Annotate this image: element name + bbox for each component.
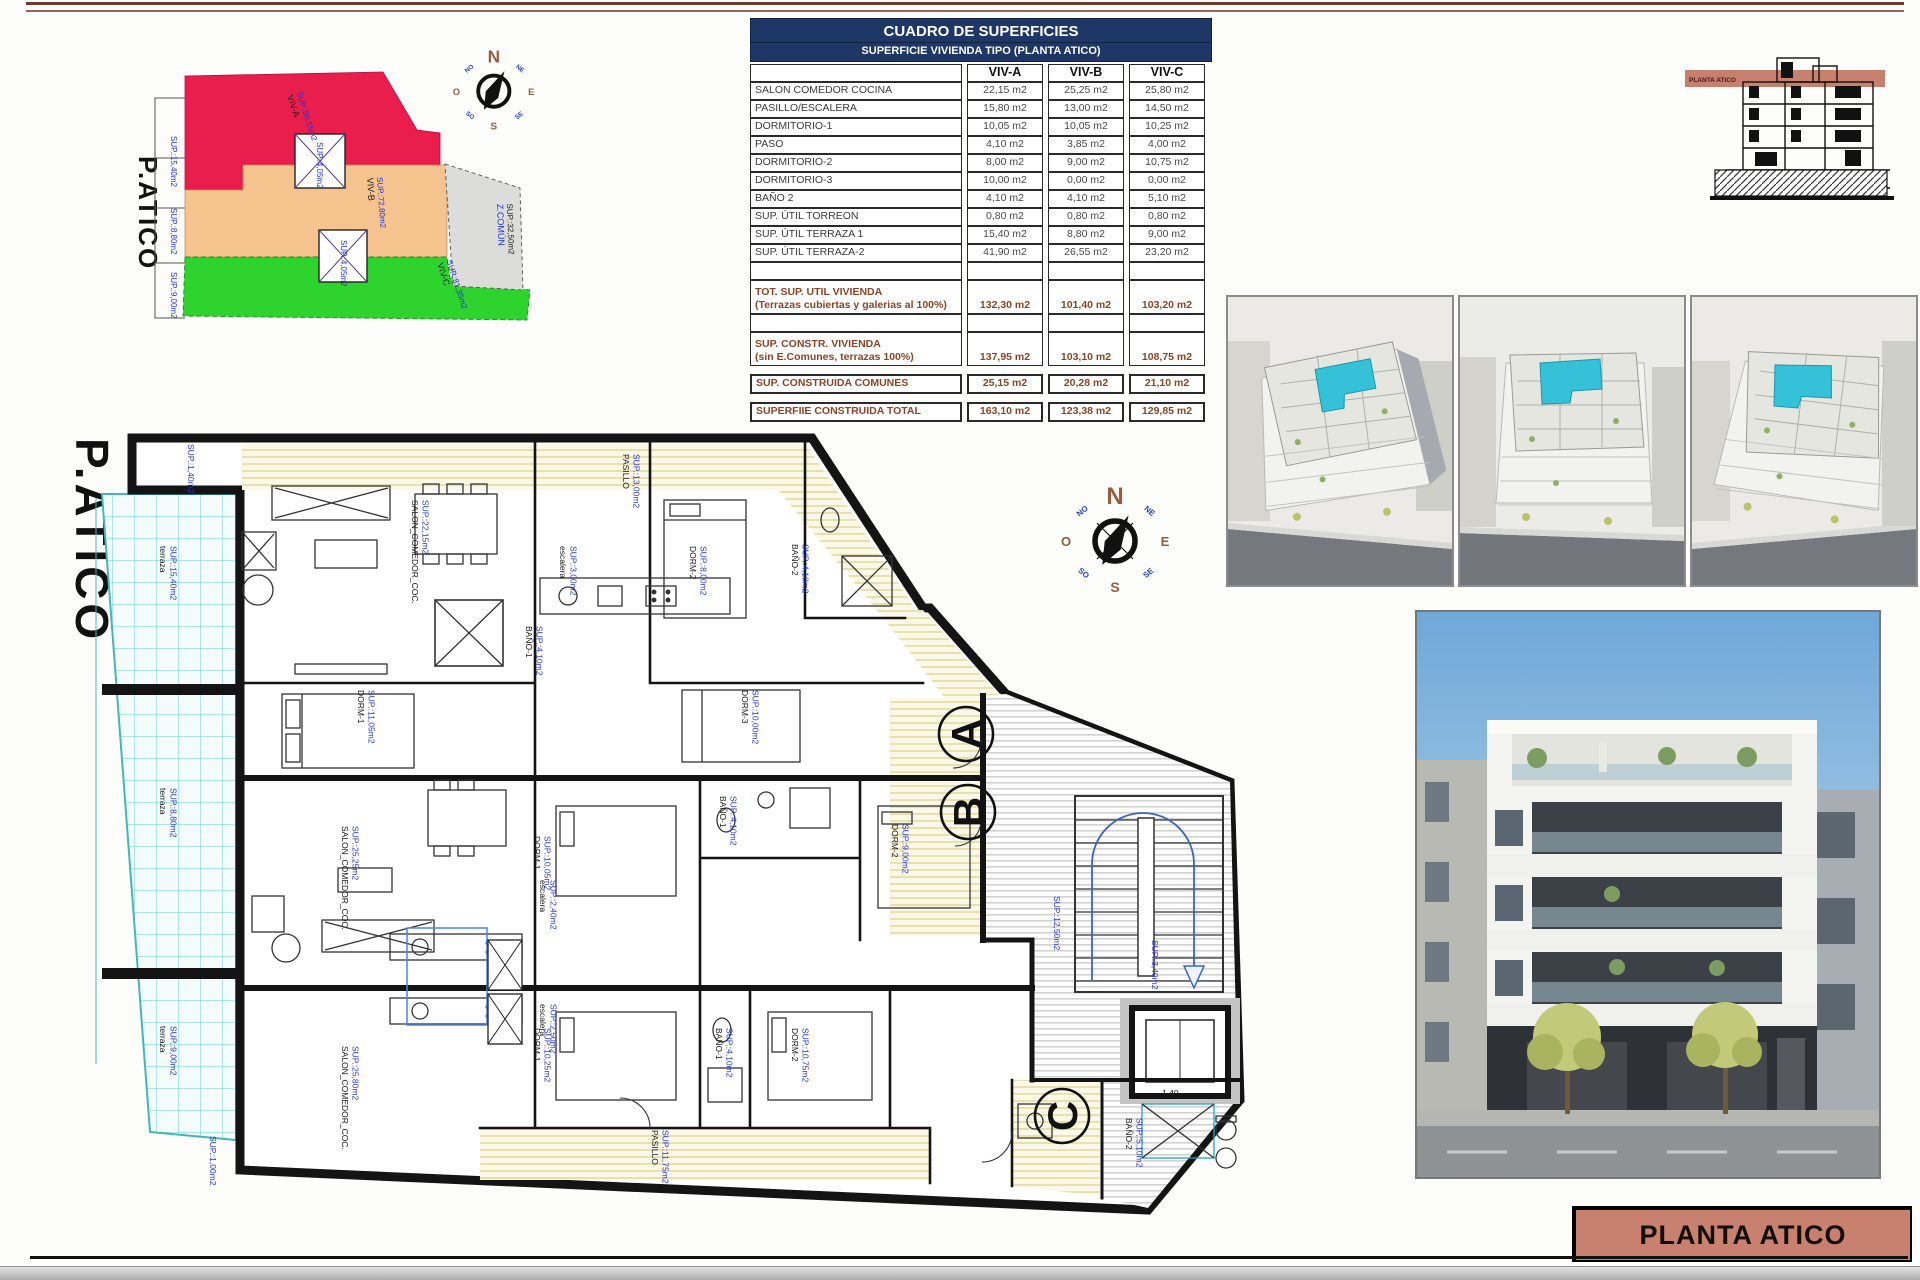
sheet-title: PLANTA ATICO <box>1640 1220 1847 1251</box>
table-cell: 129,85 m2 <box>1129 402 1205 422</box>
table-body: VIV-AVIV-BVIV-CSALON COMEDOR COCINA22,15… <box>750 64 1212 422</box>
table-row-label: SALON COMEDOR COCINA <box>750 82 962 100</box>
table-cell: 108,75 m2 <box>1129 332 1205 366</box>
table-row-label <box>750 314 962 332</box>
table-cell: 3,85 m2 <box>1048 136 1124 154</box>
table-row-label: SUPERFIIE CONSTRUIDA TOTAL <box>750 402 962 422</box>
svg-text:E: E <box>528 87 534 97</box>
table-cell: 4,10 m2 <box>967 190 1043 208</box>
table-cell: 10,25 m2 <box>1129 118 1205 136</box>
table-row-label: SUP. ÚTIL TERRAZA 1 <box>750 226 962 244</box>
svg-text:BAÑO-1: BAÑO-1 <box>524 626 534 658</box>
svg-text:terraza: terraza <box>158 1026 168 1053</box>
plan-label: SUP.:12,50m2 <box>1052 896 1062 950</box>
table-row-label: SUP. ÚTIL TERRAZA-2 <box>750 244 962 262</box>
svg-text:SUP.:10,00m2: SUP.:10,00m2 <box>751 690 761 744</box>
table-cell <box>967 366 1043 374</box>
svg-text:SUP.:13,00m2: SUP.:13,00m2 <box>632 454 642 508</box>
svg-text:PASILLO: PASILLO <box>650 1130 660 1165</box>
svg-text:SUP.:4,10m2: SUP.:4,10m2 <box>801 544 811 594</box>
svg-text:O: O <box>453 87 460 97</box>
svg-text:SE: SE <box>514 110 525 121</box>
table-row-label: SUP. CONSTRUIDA COMUNES <box>750 374 962 394</box>
table-row-label: BAÑO 2 <box>750 190 962 208</box>
table-cell <box>967 314 1043 332</box>
svg-text:terraza: terraza <box>158 788 168 815</box>
aerial-renders <box>1226 295 1910 587</box>
svg-text:1,40: 1,40 <box>1162 1088 1179 1098</box>
plan-label: SUP.:1,00m2 <box>208 1136 218 1186</box>
svg-text:SUP.:8,80m2: SUP.:8,80m2 <box>169 788 179 838</box>
table-cell <box>1129 314 1205 332</box>
svg-text:DORM-1: DORM-1 <box>532 836 542 870</box>
site-label: SUP.:15,40m2 <box>169 136 178 188</box>
svg-text:SUP.:9,00m2: SUP.:9,00m2 <box>169 272 178 319</box>
table-cell: 22,15 m2 <box>967 82 1043 100</box>
svg-text:S: S <box>490 121 497 132</box>
svg-text:SUP.:11,05m2: SUP.:11,05m2 <box>367 690 377 744</box>
table-cell <box>1048 262 1124 280</box>
svg-text:terraza: terraza <box>158 546 168 573</box>
svg-text:SUP.:1,40m2: SUP.:1,40m2 <box>186 444 196 494</box>
svg-text:SUP.:4,05m2: SUP.:4,05m2 <box>315 142 324 189</box>
table-cell: 41,90 m2 <box>967 244 1043 262</box>
floor-plan: P.ATICO <box>40 428 1250 1220</box>
table-cell: 101,40 m2 <box>1048 280 1124 314</box>
facade-render <box>1415 610 1881 1179</box>
svg-text:SALON_COMEDOR_COC.: SALON_COMEDOR_COC. <box>410 500 420 604</box>
svg-text:SALON_COMEDOR_COC.: SALON_COMEDOR_COC. <box>340 826 350 930</box>
svg-text:SUP.:25,80m2: SUP.:25,80m2 <box>351 1046 361 1100</box>
surface-table: CUADRO DE SUPERFICIES SUPERFICIE VIVIEND… <box>750 18 1212 422</box>
table-cell: 137,95 m2 <box>967 332 1043 366</box>
svg-text:P.ATICO: P.ATICO <box>133 156 163 270</box>
aerial-render-1 <box>1226 295 1454 587</box>
table-cell: VIV-B <box>1048 64 1124 82</box>
table-cell: 10,05 m2 <box>967 118 1043 136</box>
svg-text:BAÑO-2: BAÑO-2 <box>790 544 800 576</box>
drawing-sheet: P.ATICO N S O <box>0 0 1920 1280</box>
svg-text:BAÑO-2: BAÑO-2 <box>1124 1118 1134 1150</box>
svg-text:escalera: escalera <box>538 880 548 912</box>
site-compass-icon: N S O E NO NE SO SE <box>453 46 535 132</box>
plan-label: 1,40 <box>1162 1088 1179 1098</box>
table-row-label <box>750 262 962 280</box>
svg-text:SUP.:5,10m2: SUP.:5,10m2 <box>1135 1118 1145 1168</box>
svg-text:A: A <box>943 719 990 749</box>
table-cell: 23,20 m2 <box>1129 244 1205 262</box>
table-cell <box>1048 394 1124 402</box>
table-cell: 25,25 m2 <box>1048 82 1124 100</box>
title-block: PLANTA ATICO <box>1572 1206 1912 1262</box>
svg-text:VIV-B: VIV-B <box>365 177 377 201</box>
table-cell: 0,00 m2 <box>1048 172 1124 190</box>
page-edge-strip <box>0 1266 1920 1280</box>
svg-text:SUP.:8,80m2: SUP.:8,80m2 <box>169 208 178 255</box>
table-cell: 0,80 m2 <box>1048 208 1124 226</box>
table-cell: 4,10 m2 <box>1048 190 1124 208</box>
svg-text:N: N <box>488 46 500 66</box>
table-cell: 4,10 m2 <box>967 136 1043 154</box>
table-cell <box>1129 394 1205 402</box>
table-cell: 5,10 m2 <box>1129 190 1205 208</box>
svg-text:DORM-2: DORM-2 <box>890 824 900 858</box>
site-plan-title: P.ATICO <box>133 156 163 270</box>
table-cell: 10,00 m2 <box>967 172 1043 190</box>
svg-text:SUP.:1,00m2: SUP.:1,00m2 <box>208 1136 218 1186</box>
table-cell <box>1048 314 1124 332</box>
svg-text:SUP.:9,00m2: SUP.:9,00m2 <box>169 1026 179 1076</box>
svg-text:C: C <box>1039 1101 1086 1131</box>
table-cell: 132,30 m2 <box>967 280 1043 314</box>
table-cell: 10,75 m2 <box>1129 154 1205 172</box>
svg-text:DORM-2: DORM-2 <box>688 546 698 580</box>
svg-text:SUP.:22,15m2: SUP.:22,15m2 <box>421 500 431 554</box>
site-label: SUP.:4,05m2 <box>339 240 348 287</box>
aerial-render-2 <box>1458 295 1686 587</box>
site-key-plan: P.ATICO N S O <box>95 28 565 350</box>
svg-text:SUP.:10,75m2: SUP.:10,75m2 <box>801 1028 811 1082</box>
svg-text:SUP.:12,50m2: SUP.:12,50m2 <box>1052 896 1062 950</box>
table-cell: 21,10 m2 <box>1129 374 1205 394</box>
table-cell <box>967 394 1043 402</box>
svg-text:escalera: escalera <box>538 1004 548 1036</box>
sheet-bottom-line <box>30 1256 1908 1259</box>
table-cell: VIV-A <box>967 64 1043 82</box>
svg-text:BAÑO-1: BAÑO-1 <box>718 796 728 828</box>
table-cell <box>1048 366 1124 374</box>
svg-text:BAÑO-1: BAÑO-1 <box>714 1028 724 1060</box>
svg-text:PASILLO: PASILLO <box>621 454 631 489</box>
table-row-label <box>750 64 962 82</box>
table-cell: 14,50 m2 <box>1129 100 1205 118</box>
table-cell: 25,80 m2 <box>1129 82 1205 100</box>
plan-label: SUP.:3,40m2 <box>1150 940 1160 990</box>
table-cell <box>1129 262 1205 280</box>
table-row-label: DORMITORIO-1 <box>750 118 962 136</box>
svg-text:SUP.:4,10m2: SUP.:4,10m2 <box>729 796 739 846</box>
table-cell <box>750 366 962 374</box>
table-cell: 123,38 m2 <box>1048 402 1124 422</box>
svg-text:SUP.:2,40m2: SUP.:2,40m2 <box>549 880 559 930</box>
table-subtitle: SUPERFICIE VIVIENDA TIPO (PLANTA ATICO) <box>750 43 1212 62</box>
table-cell: 163,10 m2 <box>967 402 1043 422</box>
table-cell: VIV-C <box>1129 64 1205 82</box>
table-row-label: DORMITORIO-2 <box>750 154 962 172</box>
table-title: CUADRO DE SUPERFICIES <box>750 18 1212 43</box>
svg-text:Z.COMÚN: Z.COMÚN <box>495 204 506 246</box>
svg-text:SUP.:3,40m2: SUP.:3,40m2 <box>1150 940 1160 990</box>
svg-text:SUP.:15,40m2: SUP.:15,40m2 <box>169 136 178 188</box>
sheet-top-border <box>26 2 1904 12</box>
svg-text:SUP.:8,00m2: SUP.:8,00m2 <box>699 546 709 596</box>
svg-text:SUP.:4,05m2: SUP.:4,05m2 <box>339 240 348 287</box>
table-cell: 9,00 m2 <box>1129 226 1205 244</box>
svg-text:SUP.:32,50m2: SUP.:32,50m2 <box>505 203 516 255</box>
table-row-label: PASO <box>750 136 962 154</box>
svg-text:SUP.:25,25m2: SUP.:25,25m2 <box>351 826 361 880</box>
svg-text:DORM-1: DORM-1 <box>356 690 366 724</box>
svg-text:SALON_COMEDOR_COC.: SALON_COMEDOR_COC. <box>340 1046 350 1150</box>
site-label: SUP.:9,00m2 <box>169 272 178 319</box>
svg-text:DORM-3: DORM-3 <box>740 690 750 724</box>
table-cell: 8,00 m2 <box>967 154 1043 172</box>
svg-text:escalera: escalera <box>558 546 568 578</box>
svg-text:SUP.:9,00m2: SUP.:9,00m2 <box>901 824 911 874</box>
table-cell <box>967 262 1043 280</box>
table-cell: 15,40 m2 <box>967 226 1043 244</box>
site-label: SUP.:4,05m2 <box>315 142 324 189</box>
section-base-line <box>1710 196 1894 200</box>
table-row-label: PASILLO/ESCALERA <box>750 100 962 118</box>
table-cell: 103,20 m2 <box>1129 280 1205 314</box>
site-label: SUP.:8,80m2 <box>169 208 178 255</box>
table-row-label: SUP. CONSTR. VIVIENDA (sin E.Comunes, te… <box>750 332 962 366</box>
table-cell: 0,80 m2 <box>967 208 1043 226</box>
table-cell: 0,00 m2 <box>1129 172 1205 190</box>
elevator <box>1120 998 1240 1104</box>
section-ground-hatch <box>1715 170 1887 196</box>
building-section-diagram: PLANTA ATICO <box>1685 30 1910 208</box>
table-cell: 9,00 m2 <box>1048 154 1124 172</box>
svg-text:SUP.:4,10m2: SUP.:4,10m2 <box>725 1028 735 1078</box>
plan-label: SUP.:1,40m2 <box>186 444 196 494</box>
table-cell: 4,00 m2 <box>1129 136 1205 154</box>
svg-text:SO: SO <box>464 110 476 121</box>
svg-text:NO: NO <box>464 63 476 74</box>
table-row-label: TOT. SUP. UTIL VIVIENDA (Terrazas cubier… <box>750 280 962 314</box>
table-row-label: DORMITORIO-3 <box>750 172 962 190</box>
table-cell: 103,10 m2 <box>1048 332 1124 366</box>
table-cell <box>1129 366 1205 374</box>
svg-text:DORM-2: DORM-2 <box>790 1028 800 1062</box>
table-cell <box>750 394 962 402</box>
table-row-label: SUP. ÚTIL TORREON <box>750 208 962 226</box>
table-cell: 26,55 m2 <box>1048 244 1124 262</box>
table-cell: 15,80 m2 <box>967 100 1043 118</box>
table-cell: 0,80 m2 <box>1129 208 1205 226</box>
table-cell: 10,05 m2 <box>1048 118 1124 136</box>
svg-text:SUP.:3,00m2: SUP.:3,00m2 <box>569 546 579 596</box>
svg-text:SUP.:11,75m2: SUP.:11,75m2 <box>661 1130 671 1184</box>
aerial-render-3 <box>1690 295 1918 587</box>
svg-text:SUP.:15,40m2: SUP.:15,40m2 <box>169 546 179 600</box>
table-cell: 20,28 m2 <box>1048 374 1124 394</box>
table-cell: 8,80 m2 <box>1048 226 1124 244</box>
svg-text:B: B <box>945 797 992 827</box>
table-cell: 13,00 m2 <box>1048 100 1124 118</box>
svg-text:SUP.:4,10m2: SUP.:4,10m2 <box>535 626 545 676</box>
svg-text:SUP.:2,50m2: SUP.:2,50m2 <box>549 1004 559 1054</box>
svg-text:NE: NE <box>514 63 525 74</box>
section-band-label: PLANTA ATICO <box>1689 77 1736 84</box>
table-cell: 25,15 m2 <box>967 374 1043 394</box>
